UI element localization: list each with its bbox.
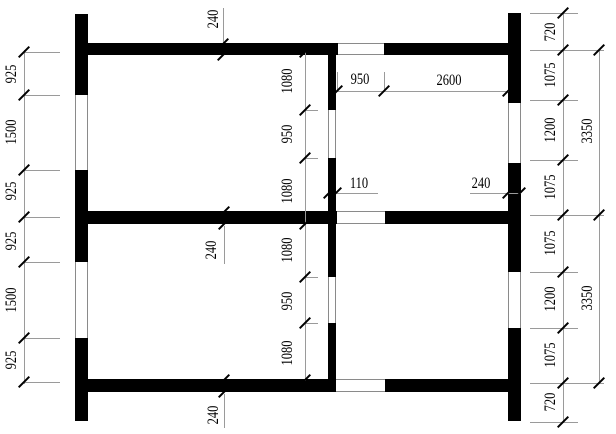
dimension-line — [599, 50, 600, 383]
dimension-label: 1080 — [280, 179, 296, 204]
extension-line — [24, 170, 60, 171]
window-opening — [75, 95, 88, 170]
door-opening — [338, 43, 384, 55]
extension-line — [224, 226, 225, 264]
extension-line — [530, 160, 578, 161]
dimension-label: 925 — [4, 65, 20, 84]
door-opening — [336, 379, 385, 392]
extension-line — [305, 277, 318, 278]
dimension-label: 240 — [206, 406, 222, 425]
dimension-label: 1075 — [543, 63, 559, 88]
dimension-label: 950 — [280, 292, 296, 311]
window-opening — [328, 277, 336, 323]
dimension-line — [470, 193, 521, 194]
extension-line — [530, 272, 578, 273]
dimension-label: 1500 — [4, 120, 20, 145]
extension-line — [530, 328, 578, 329]
extension-line — [530, 100, 578, 101]
extension-line — [305, 323, 318, 324]
extension-line — [223, 8, 224, 43]
extension-line — [24, 382, 60, 383]
dimension-label: 925 — [4, 182, 20, 201]
dimension-label: 925 — [4, 351, 20, 370]
dimension-label: 1075 — [543, 175, 559, 200]
dimension-label: 1080 — [280, 69, 296, 94]
extension-line — [224, 394, 225, 428]
extension-line — [530, 13, 578, 14]
middle-wall-segment — [385, 211, 508, 224]
dimension-label: 240 — [204, 241, 220, 260]
dimension-line — [337, 91, 509, 92]
dimension-label: 1200 — [543, 287, 559, 312]
extension-line — [530, 383, 604, 384]
dimension-label: 1200 — [543, 118, 559, 143]
extension-line — [305, 110, 318, 111]
extension-line — [24, 262, 60, 263]
dimension-label: 1500 — [4, 288, 20, 313]
dimension-line — [337, 193, 378, 194]
window-opening — [328, 110, 336, 158]
dimension-label: 1075 — [543, 343, 559, 368]
dimension-label: 720 — [543, 23, 559, 42]
dimension-label: 1080 — [280, 341, 296, 366]
left-wall-segment — [75, 170, 88, 262]
extension-line — [24, 217, 60, 218]
extension-line — [530, 50, 604, 51]
dimension-label: 1080 — [280, 238, 296, 263]
dimension-label: 925 — [4, 232, 20, 251]
dimension-label: 950 — [351, 72, 370, 88]
dimension-label: 110 — [350, 176, 368, 192]
bottom-wall-segment — [88, 379, 336, 392]
dimension-line — [305, 51, 306, 381]
extension-line — [24, 95, 60, 96]
dimension-label: 2600 — [437, 73, 462, 89]
dimension-label: 950 — [280, 125, 296, 144]
dimension-label: 240 — [206, 10, 222, 29]
extension-line — [24, 338, 60, 339]
dimension-label: 3350 — [580, 286, 596, 311]
dimension-label: 3350 — [580, 119, 596, 144]
left-wall-segment — [75, 338, 88, 421]
bottom-wall-segment — [385, 379, 508, 392]
right-wall-segment — [508, 328, 521, 421]
right-wall-segment — [508, 163, 521, 272]
middle-wall-segment — [88, 211, 337, 224]
window-opening — [508, 103, 521, 163]
extension-line — [530, 422, 578, 423]
left-wall-segment — [75, 14, 88, 95]
window-opening — [508, 272, 521, 328]
extension-line — [530, 215, 604, 216]
dimension-line — [563, 13, 564, 422]
door-opening — [337, 211, 385, 224]
floor-plan-drawing: 925 1500 925 925 1500 925 1080 950 1080 … — [0, 0, 616, 434]
extension-line — [24, 52, 60, 53]
window-opening — [75, 262, 88, 338]
dimension-label: 240 — [472, 176, 491, 192]
extension-line — [305, 158, 318, 159]
top-wall-segment — [384, 43, 508, 55]
dimension-label: 1075 — [543, 231, 559, 256]
dimension-label: 720 — [543, 393, 559, 412]
